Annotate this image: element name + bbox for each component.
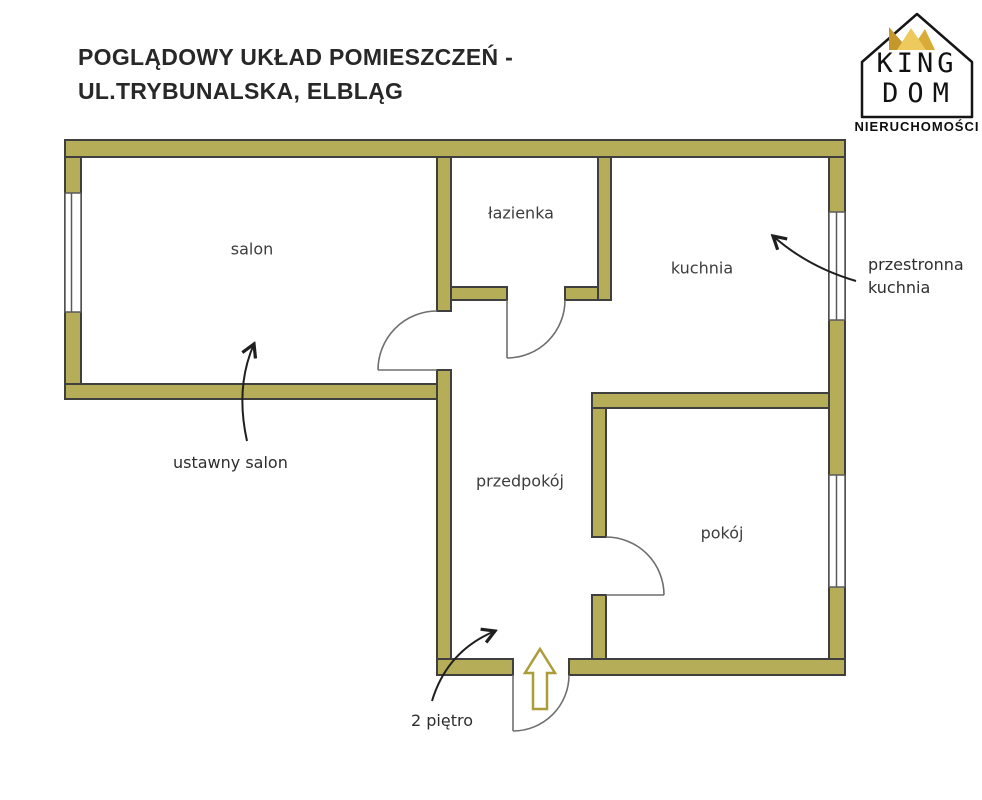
wall-pokoj-top <box>592 393 829 408</box>
page-title-line2: UL.TRYBUNALSKA, ELBLĄG <box>78 74 513 108</box>
room-label-pokoj: pokój <box>701 524 744 543</box>
page-title: POGLĄDOWY UKŁAD POMIESZCZEŃ - UL.TRYBUNA… <box>78 40 513 108</box>
door-pokoj <box>606 537 664 595</box>
room-label-przedpokoj: przedpokój <box>476 472 564 491</box>
wall-pokoj-left-upper <box>592 408 606 537</box>
wall-bath-right <box>598 157 611 300</box>
wall-hall-left-lower <box>437 370 451 675</box>
walls <box>65 140 845 675</box>
wall-salon-bottom <box>65 384 451 399</box>
entry-direction-arrow-icon <box>525 649 555 709</box>
floorplan-page: POGLĄDOWY UKŁAD POMIESZCZEŃ - UL.TRYBUNA… <box>0 0 982 800</box>
annotation-przestronna-kuchnia: przestronna kuchnia <box>868 253 976 299</box>
floorplan-graphics <box>0 0 982 800</box>
wall-hall-left-upper <box>437 157 451 311</box>
room-label-kuchnia: kuchnia <box>671 259 733 278</box>
logo-text-dom: DOM <box>882 78 958 109</box>
annotation-2-pietro: 2 piętro <box>411 709 473 732</box>
window-salon <box>65 193 81 312</box>
annotation-ustawny-salon: ustawny salon <box>173 451 288 474</box>
wall-bath-bottom-left <box>451 287 507 300</box>
annotation-arrows <box>242 236 856 701</box>
room-label-lazienka: łazienka <box>488 204 554 223</box>
wall-top <box>65 140 845 157</box>
room-label-salon: salon <box>231 240 274 259</box>
page-title-line1: POGLĄDOWY UKŁAD POMIESZCZEŃ - <box>78 40 513 74</box>
wall-bottom-right <box>569 659 845 675</box>
logo-subtitle: NIERUCHOMOŚCI <box>855 119 980 134</box>
window-pokoj <box>829 475 845 587</box>
logo-text-king: KING <box>876 48 957 79</box>
door-lazienka <box>507 300 565 358</box>
wall-pokoj-left-lower <box>592 595 606 659</box>
wall-bath-bottom-right <box>565 287 598 300</box>
window-kuchnia <box>829 212 845 320</box>
door-salon <box>378 311 437 370</box>
